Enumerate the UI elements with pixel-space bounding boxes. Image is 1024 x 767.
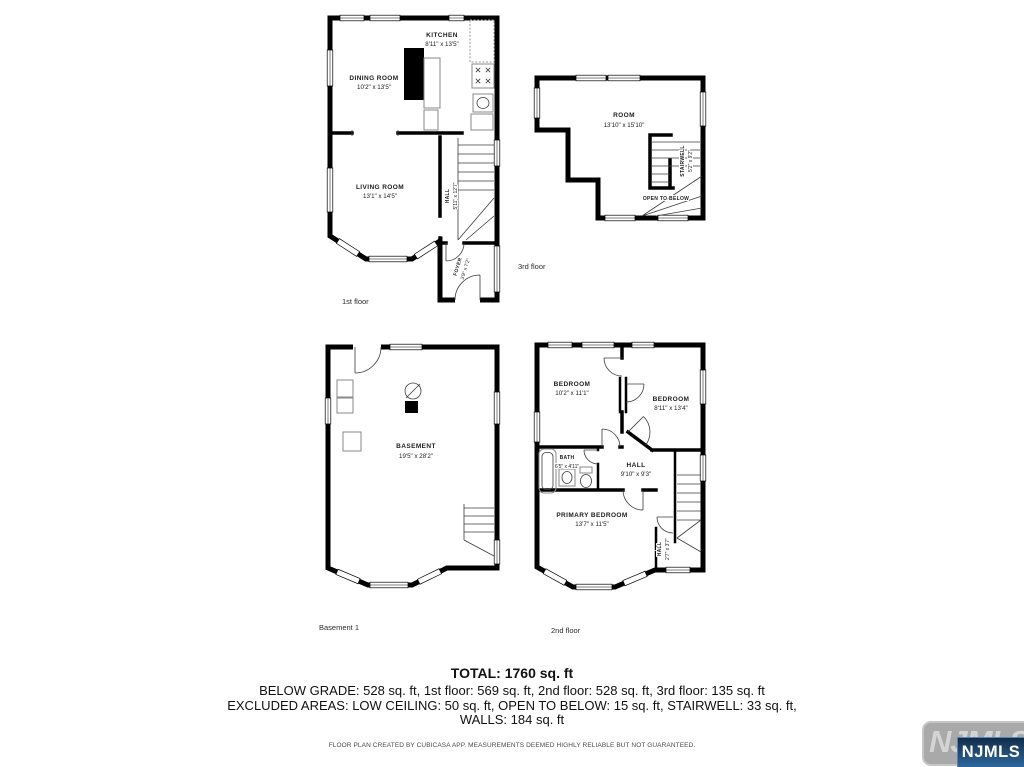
total-area: TOTAL: 1760 sq. ft bbox=[0, 665, 1024, 681]
furnace bbox=[405, 401, 418, 413]
bath-label: BATH bbox=[560, 455, 575, 461]
primary-bedroom-label: PRIMARY BEDROOM bbox=[556, 512, 627, 519]
hall-label: HALL bbox=[627, 462, 646, 469]
kitchen-dims: 8'11" x 13'5" bbox=[425, 41, 458, 48]
room-dims: 13'10" x 15'10" bbox=[604, 122, 645, 129]
floorplan-page: { "plans": { "first_floor": { "caption":… bbox=[0, 0, 1024, 767]
first-floor-walls bbox=[330, 18, 497, 300]
second-floor-labels: BEDROOM 10'2" x 11'1" BEDROOM 8'11" x 13… bbox=[554, 381, 690, 560]
njmls-badge-text: NJMLS bbox=[962, 743, 1020, 762]
hall2-dims: 2'7" x 3'7" bbox=[665, 538, 671, 560]
basement-fixtures bbox=[337, 380, 421, 451]
basement-caption: Basement 1 bbox=[319, 623, 359, 632]
living-room-dims: 13'1" x 14'5" bbox=[363, 193, 397, 200]
basement-dims: 19'5" x 28'2" bbox=[399, 453, 433, 460]
excluded-areas: EXCLUDED AREAS: LOW CEILING: 50 sq. ft, … bbox=[0, 699, 1024, 714]
kitchen-sink bbox=[473, 94, 493, 112]
hall-dims: 9'10" x 9'3" bbox=[621, 471, 652, 478]
njmls-watermark: NJMLS NJMLS bbox=[922, 720, 1024, 767]
second-floor-stairs bbox=[677, 475, 701, 552]
basement-stairs bbox=[464, 504, 494, 556]
third-floor-caption: 3rd floor bbox=[518, 262, 546, 271]
room-label: ROOM bbox=[613, 112, 635, 119]
stove bbox=[472, 64, 494, 88]
bath-dims: 6'5" x 4'11" bbox=[555, 464, 579, 470]
third-floor-plan: ROOM 13'10" x 15'10" OPEN TO BELOW STAIR… bbox=[526, 60, 714, 232]
basement-windows bbox=[325, 344, 500, 588]
dining-room-dims: 10'2" x 13'5" bbox=[357, 84, 391, 91]
stairwell-dims: 5'2" x 9'2" bbox=[688, 150, 694, 172]
basement-door bbox=[353, 344, 381, 373]
walls-area: WALLS: 184 sq. ft bbox=[0, 713, 1024, 728]
hall-label: HALL bbox=[445, 189, 451, 204]
bathtub bbox=[539, 449, 556, 493]
chimney bbox=[404, 48, 424, 100]
first-floor-caption: 1st floor bbox=[342, 297, 369, 306]
bedroom2-dims: 8'11" x 13'4" bbox=[654, 405, 687, 412]
bedroom2-label: BEDROOM bbox=[653, 396, 690, 403]
bedroom1-dims: 10'2" x 11'1" bbox=[555, 390, 588, 397]
bedroom1-label: BEDROOM bbox=[554, 381, 591, 388]
disclaimer: FLOOR PLAN CREATED BY CUBICASA APP. MEAS… bbox=[0, 742, 1024, 749]
second-floor-caption: 2nd floor bbox=[551, 626, 580, 635]
hall-dims: 5'11" x 12'7" bbox=[453, 182, 459, 209]
first-floor-stairs bbox=[458, 138, 494, 240]
second-floor-plan: BEDROOM 10'2" x 11'1" BEDROOM 8'11" x 13… bbox=[526, 336, 714, 600]
hall2-label: HALL bbox=[657, 542, 663, 557]
njmls-logo-badge: NJMLS bbox=[957, 737, 1024, 767]
first-floor-plan: KITCHEN 8'11" x 13'5" DINING ROOM 10'2" … bbox=[316, 6, 510, 310]
toilet bbox=[580, 467, 592, 473]
area-summary: TOTAL: 1760 sq. ft BELOW GRADE: 528 sq. … bbox=[0, 665, 1024, 728]
open-to-below-label: OPEN TO BELOW bbox=[643, 196, 689, 202]
stairwell-label: STAIRWELL bbox=[680, 145, 686, 176]
floor-areas: BELOW GRADE: 528 sq. ft, 1st floor: 569 … bbox=[0, 684, 1024, 699]
basement-labels: BASEMENT 19'5" x 28'2" bbox=[396, 443, 436, 460]
basement-plan: BASEMENT 19'5" x 28'2" bbox=[316, 336, 510, 598]
basement-label: BASEMENT bbox=[396, 443, 436, 450]
living-room-label: LIVING ROOM bbox=[356, 184, 404, 191]
kitchen-label: KITCHEN bbox=[426, 32, 458, 39]
dining-room-label: DINING ROOM bbox=[349, 75, 398, 82]
primary-bedroom-dims: 13'7" x 11'5" bbox=[575, 521, 608, 528]
